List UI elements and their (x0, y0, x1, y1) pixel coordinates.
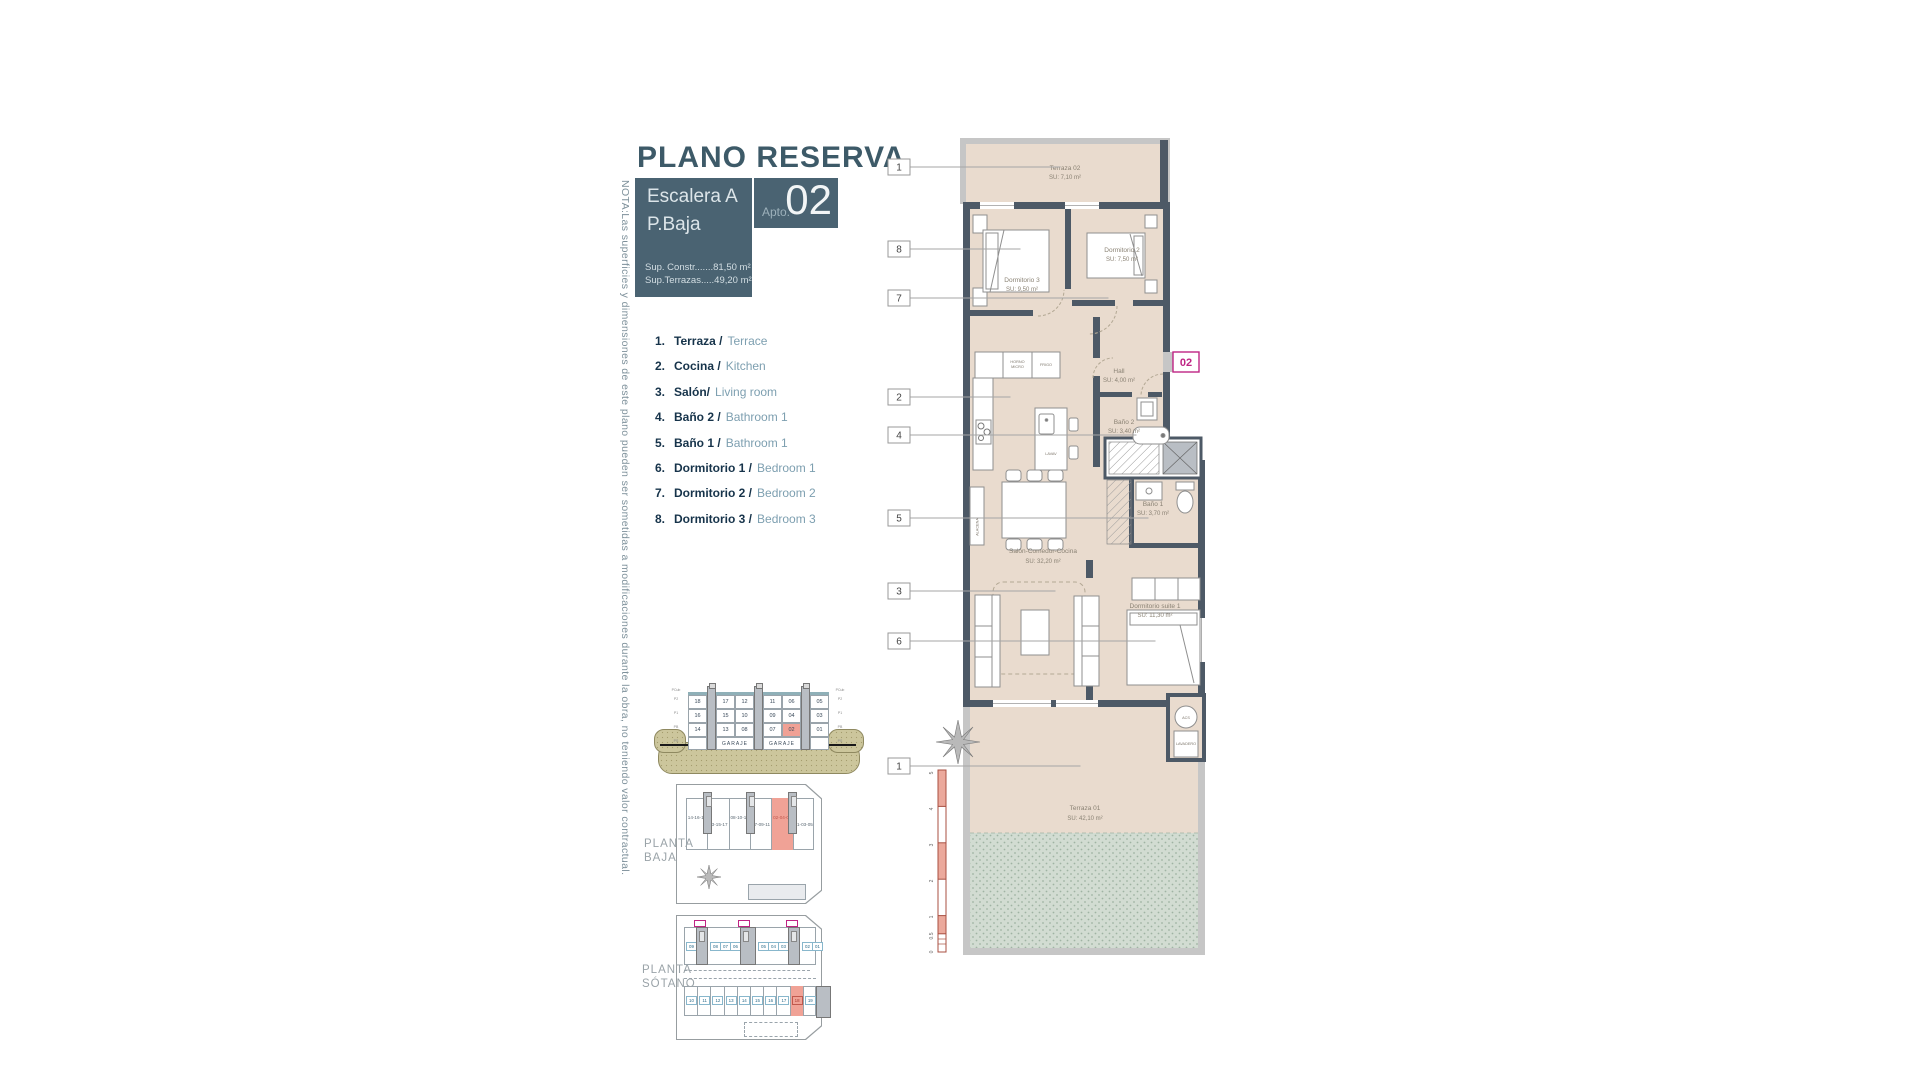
ps-slot-divider (710, 986, 711, 1016)
legend-item-en: Kitchen (726, 359, 766, 373)
svg-text:SU: 7,50 m²: SU: 7,50 m² (1106, 257, 1138, 263)
ps-ramp-dashed (744, 1022, 798, 1037)
svg-text:2: 2 (929, 879, 935, 882)
svg-text:SU: 9,50 m²: SU: 9,50 m² (1006, 287, 1038, 293)
section-unit-cell: 02 (782, 723, 801, 737)
legend-item-number: 8. (655, 512, 669, 526)
ps-parking-number: 11 (699, 996, 710, 1005)
svg-text:0.5: 0.5 (929, 932, 935, 939)
ps-parking-number: 15 (752, 996, 763, 1005)
section-unit-cell: 12 (735, 695, 754, 709)
building-cross-section: 181712110605161510090403141308070201GARA… (660, 685, 870, 777)
ps-lane-dash (684, 978, 816, 979)
legend-item: 6.Dormitorio 1 /Bedroom 1 (655, 461, 816, 475)
surface-info: Sup. Constr.......81,50 m² Sup.Terrazas.… (645, 261, 752, 287)
section-floor-label: P1 (668, 711, 684, 715)
compass-icon (696, 864, 722, 890)
section-floor-label: PS (832, 739, 848, 743)
ps-parking-number: 12 (712, 996, 723, 1005)
ps-slot-divider (803, 986, 804, 1016)
acs-label: ACS (1182, 716, 1190, 720)
planta-sotano-label-1: PLANTA (642, 964, 692, 976)
section-unit-cell: 14 (688, 723, 707, 737)
svg-text:7: 7 (896, 294, 902, 305)
ps-trastero-number: 01 (812, 942, 823, 951)
legend-item-number: 6. (655, 461, 669, 475)
legend-item-es: Salón/ (674, 385, 710, 399)
legend-item-es: Dormitorio 1 / (674, 461, 752, 475)
ps-lane-dash (684, 970, 810, 971)
legend-item: 7.Dormitorio 2 /Bedroom 2 (655, 486, 816, 500)
svg-text:SU: 11,30 m²: SU: 11,30 m² (1138, 613, 1173, 619)
legend-item-es: Baño 1 / (674, 436, 721, 450)
ps-slot-divider (724, 986, 725, 1016)
ps-slot-divider (697, 986, 698, 1016)
svg-text:6: 6 (896, 637, 902, 648)
section-garaje-label: GARAJE (716, 737, 754, 750)
ps-esc-mark (694, 920, 706, 927)
room-name: Terraza 02 (1050, 165, 1081, 172)
legend-item: 3.Salón/Living room (655, 385, 777, 399)
ps-slot-divider (776, 986, 777, 1016)
svg-text:Hall: Hall (1113, 368, 1125, 375)
svg-text:Dormitorio suite 1: Dormitorio suite 1 (1130, 603, 1181, 610)
section-unit-cell: 08 (735, 723, 754, 737)
legend-item-es: Baño 2 / (674, 410, 721, 424)
legend-item-en: Bedroom 3 (757, 512, 816, 526)
page-title: PLANO RESERVA (637, 141, 906, 175)
pb-core-door (749, 796, 755, 807)
section-unit-cell: 04 (782, 709, 801, 723)
section-core-cap (709, 683, 716, 689)
legend-item: 4.Baño 2 /Bathroom 1 (655, 410, 788, 424)
pb-core-door (706, 796, 712, 807)
legend-item-en: Terrace (727, 334, 767, 348)
legend-item-number: 3. (655, 385, 669, 399)
svg-text:SU: 3,70 m²: SU: 3,70 m² (1137, 511, 1169, 517)
section-unit-cell: 06 (782, 695, 801, 709)
svg-text:3: 3 (929, 843, 935, 846)
room-area: SU: 42,10 m² (1067, 816, 1102, 822)
ps-parking-number: 19 (805, 996, 816, 1005)
pb-core-door (791, 796, 797, 807)
svg-text:Dormitorio 3: Dormitorio 3 (1004, 277, 1040, 284)
section-unit-cell: 11 (763, 695, 782, 709)
pb-cell-divider (771, 798, 772, 850)
apartment-number-box: Apto. 02 (754, 178, 838, 228)
terrace-02: Terraza 02 SU: 7,10 m² (960, 138, 1170, 204)
ps-stair-core (696, 927, 708, 965)
svg-text:Salón-Comedor-Cocina: Salón-Comedor-Cocina (1009, 548, 1077, 555)
ps-stair-core (740, 927, 756, 965)
legend-item-number: 2. (655, 359, 669, 373)
svg-text:2: 2 (896, 393, 902, 404)
legend-item-es: Dormitorio 2 / (674, 486, 752, 500)
legend-item-es: Dormitorio 3 / (674, 512, 752, 526)
svg-text:Dormitorio 2: Dormitorio 2 (1104, 247, 1140, 254)
section-unit-cell: 17 (716, 695, 735, 709)
section-floor-label: PS (668, 739, 684, 743)
section-unit-cell: 18 (688, 695, 707, 709)
section-unit-cell: 07 (763, 723, 782, 737)
alacena-label: ALACENA (976, 518, 980, 536)
svg-text:1: 1 (896, 163, 902, 174)
garden-area (970, 833, 1198, 948)
surface-built: Sup. Constr.......81,50 m² (645, 261, 752, 274)
pb-stair-core (746, 792, 755, 834)
planta-baja-label-1: PLANTA (644, 838, 694, 850)
stairs-lower (1107, 480, 1131, 544)
section-unit-cell: 03 (810, 709, 829, 723)
section-core-cap (803, 683, 810, 689)
suite-furniture (1127, 578, 1200, 685)
section-garage-side (688, 737, 707, 750)
floor-plan: Terraza 02 SU: 7,10 m² (880, 130, 1220, 960)
legend-item-en: Bedroom 1 (757, 461, 816, 475)
svg-text:1: 1 (929, 915, 935, 918)
section-floor-label: P1 (832, 711, 848, 715)
legend-item-number: 1. (655, 334, 669, 348)
pb-stair-core (788, 792, 797, 834)
pb-stair-core (703, 792, 712, 834)
svg-text:Baño 2: Baño 2 (1114, 419, 1135, 426)
section-stair-core (707, 686, 716, 750)
ps-stair-core (788, 927, 800, 965)
apartment-badge: 02 (1173, 352, 1199, 372)
svg-text:SU: 3,40 m²: SU: 3,40 m² (1108, 429, 1140, 435)
ps-parking-number: 16 (765, 996, 776, 1005)
svg-text:5: 5 (896, 514, 902, 525)
ps-parking-number: 10 (686, 996, 697, 1005)
ps-core-door (791, 931, 797, 942)
legend-item: 5.Baño 1 /Bathroom 1 (655, 436, 788, 450)
section-unit-cell: 16 (688, 709, 707, 723)
legend-item-number: 7. (655, 486, 669, 500)
svg-text:0: 0 (929, 950, 935, 953)
section-floor-label: PB (668, 725, 684, 729)
legend-item: 1.Terraza /Terrace (655, 334, 767, 348)
room-legend: 1.Terraza /Terrace2.Cocina /Kitchen3.Sal… (655, 334, 875, 544)
stairs (1109, 442, 1159, 474)
ps-parking-number: 17 (778, 996, 789, 1005)
legend-item-es: Cocina / (674, 359, 721, 373)
legend-item: 8.Dormitorio 3 /Bedroom 3 (655, 512, 816, 526)
plano-reserva-sheet: { "note_vertical": "NOTA:Las superficies… (0, 0, 1920, 1080)
ps-slot-divider (763, 986, 764, 1016)
section-unit-cell: 09 (763, 709, 782, 723)
svg-text:Baño 1: Baño 1 (1143, 501, 1164, 508)
section-floor-label: PCub (668, 688, 684, 692)
utility-nook: ACS LAVADERO (1168, 695, 1204, 760)
section-unit-cell: 10 (735, 709, 754, 723)
section-stair-core (801, 686, 810, 750)
svg-text:3: 3 (896, 587, 902, 598)
stair-label: Escalera A (647, 186, 738, 208)
planta-sotano-label-2: SÓTANO (642, 978, 696, 990)
ps-slot-divider (750, 986, 751, 1016)
svg-text:SU: 4,00 m²: SU: 4,00 m² (1103, 378, 1135, 384)
legend-item-number: 4. (655, 410, 669, 424)
section-unit-cell: 13 (716, 723, 735, 737)
section-unit-grid: 181712110605161510090403141308070201GARA… (688, 692, 829, 752)
svg-text:5: 5 (929, 771, 935, 774)
vertical-note: NOTA:Las superficies y dimensiones de es… (613, 180, 631, 910)
section-unit-cell: 01 (810, 723, 829, 737)
lavav-label: LAVAV (1045, 452, 1057, 456)
frigo-label: FRIGO (1040, 363, 1052, 367)
micro-label: MICRO (1011, 365, 1024, 369)
section-unit-cell: 05 (810, 695, 829, 709)
surface-terrace: Sup.Terrazas.....49,20 m² (645, 274, 752, 287)
ps-parking-number: 18 (792, 996, 803, 1005)
stair-floor-box: Escalera A P.Baja Sup. Constr.......81,5… (635, 178, 752, 297)
svg-text:1: 1 (896, 762, 902, 773)
ps-slot-divider (790, 986, 791, 1016)
section-floor-label: P2 (832, 697, 848, 701)
svg-text:8: 8 (896, 245, 902, 256)
pool (748, 884, 806, 900)
lavadero-label: LAVADERO (1176, 742, 1196, 746)
horno-label: HORNO (1010, 360, 1024, 364)
ps-esc-mark (738, 920, 750, 927)
section-garaje-label: GARAJE (763, 737, 801, 750)
ps-esc-mark (786, 920, 798, 927)
section-stair-core (754, 686, 763, 750)
scale-bar: 5 4 3 2 1 0.5 0 (929, 770, 946, 953)
dining-set (1002, 470, 1066, 550)
legend-item-en: Living room (715, 385, 777, 399)
ps-parking-number: 13 (726, 996, 737, 1005)
apto-number: 02 (785, 176, 832, 224)
legend-item-en: Bedroom 2 (757, 486, 816, 500)
section-unit-cell: 15 (716, 709, 735, 723)
svg-text:02: 02 (1180, 357, 1192, 369)
room-area: SU: 7,10 m² (1049, 175, 1081, 181)
pb-cell-divider (729, 798, 730, 850)
ps-core-door (743, 931, 749, 942)
legend-item-en: Bathroom 1 (726, 436, 788, 450)
floor-label: P.Baja (647, 214, 701, 236)
svg-text:SU: 32,20 m²: SU: 32,20 m² (1025, 559, 1060, 565)
ps-parking-number: 14 (739, 996, 750, 1005)
section-floor-label: PCub (832, 688, 848, 692)
section-core-cap (756, 683, 763, 689)
site-plan-planta-sotano: 09080706050403020110111213141516171819 P… (640, 912, 840, 1046)
section-floor-label: P2 (668, 697, 684, 701)
legend-item-en: Bathroom 1 (726, 410, 788, 424)
legend-item: 2.Cocina /Kitchen (655, 359, 766, 373)
svg-text:4: 4 (929, 807, 935, 810)
ps-slot-divider (737, 986, 738, 1016)
legend-item-number: 5. (655, 436, 669, 450)
section-floor-label: PB (832, 725, 848, 729)
room-name: Terraza 01 (1070, 805, 1101, 812)
ps-core-block (816, 986, 831, 1018)
ps-core-door (699, 931, 705, 942)
legend-item-es: Terraza / (674, 334, 722, 348)
section-garage-side (810, 737, 829, 750)
planta-baja-label-2: BAJA (644, 852, 677, 864)
site-plan-planta-baja: 14-16-1813-15-1708-10-1207-09-1102-04-06… (640, 780, 840, 910)
svg-text:4: 4 (896, 431, 902, 442)
